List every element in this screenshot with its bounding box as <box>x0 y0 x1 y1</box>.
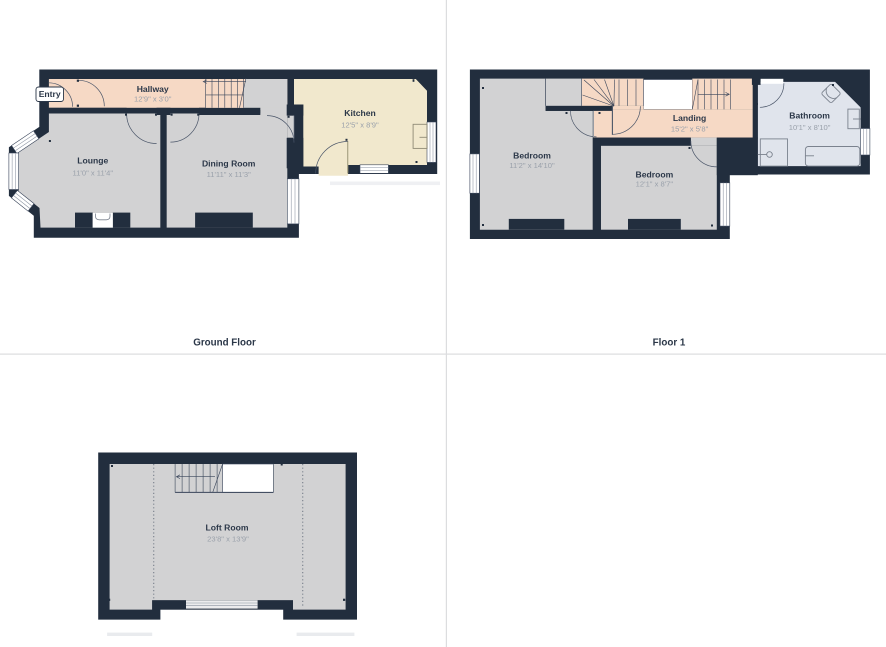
svg-text:12'9" x 3'0": 12'9" x 3'0" <box>134 95 172 104</box>
svg-text:12'1" x 8'7": 12'1" x 8'7" <box>636 180 674 189</box>
svg-text:12'5" x 8'9": 12'5" x 8'9" <box>341 120 379 129</box>
svg-text:23'8" x 13'9": 23'8" x 13'9" <box>207 534 249 543</box>
svg-text:Floor 1: Floor 1 <box>653 337 686 348</box>
svg-text:Loft Room: Loft Room <box>206 522 249 532</box>
svg-text:Entry: Entry <box>39 89 61 99</box>
svg-text:Landing: Landing <box>673 113 706 123</box>
svg-text:15'2" x 5'8": 15'2" x 5'8" <box>671 124 709 133</box>
svg-text:11'2" x 14'10": 11'2" x 14'10" <box>509 161 555 170</box>
svg-text:Bedroom: Bedroom <box>513 150 551 160</box>
svg-text:11'0" x 11'4": 11'0" x 11'4" <box>73 168 114 177</box>
svg-text:Kitchen: Kitchen <box>344 108 376 118</box>
svg-text:Hallway: Hallway <box>137 84 169 94</box>
svg-text:11'11" x 11'3": 11'11" x 11'3" <box>207 170 251 179</box>
svg-text:Bathroom: Bathroom <box>789 111 830 121</box>
svg-text:Lounge: Lounge <box>77 156 108 166</box>
svg-text:Bedroom: Bedroom <box>636 170 674 180</box>
svg-text:Dining Room: Dining Room <box>202 158 256 168</box>
svg-text:Ground Floor: Ground Floor <box>193 337 256 348</box>
svg-text:10'1" x 8'10": 10'1" x 8'10" <box>789 123 831 132</box>
